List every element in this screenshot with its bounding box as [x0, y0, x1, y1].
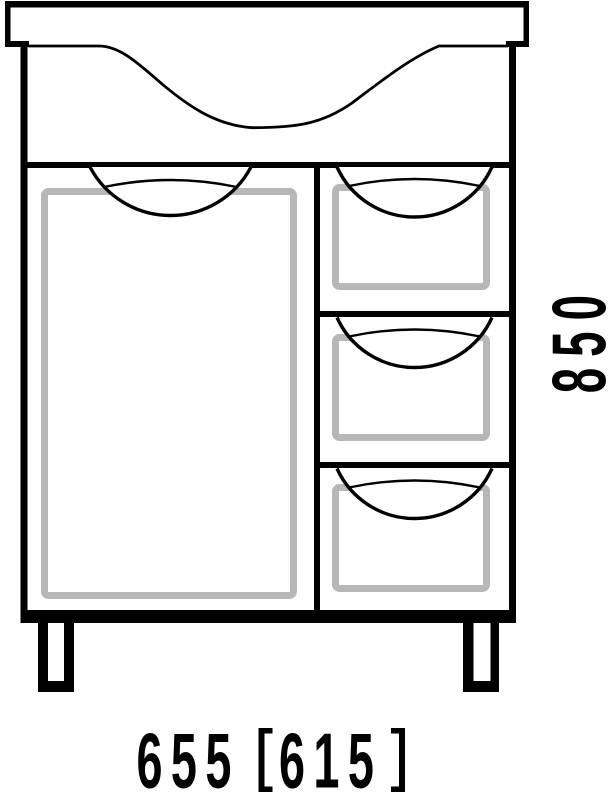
svg-text:655: 655: [137, 717, 240, 800]
svg-text:850: 850: [538, 284, 612, 393]
svg-text:615: 615: [279, 717, 382, 800]
